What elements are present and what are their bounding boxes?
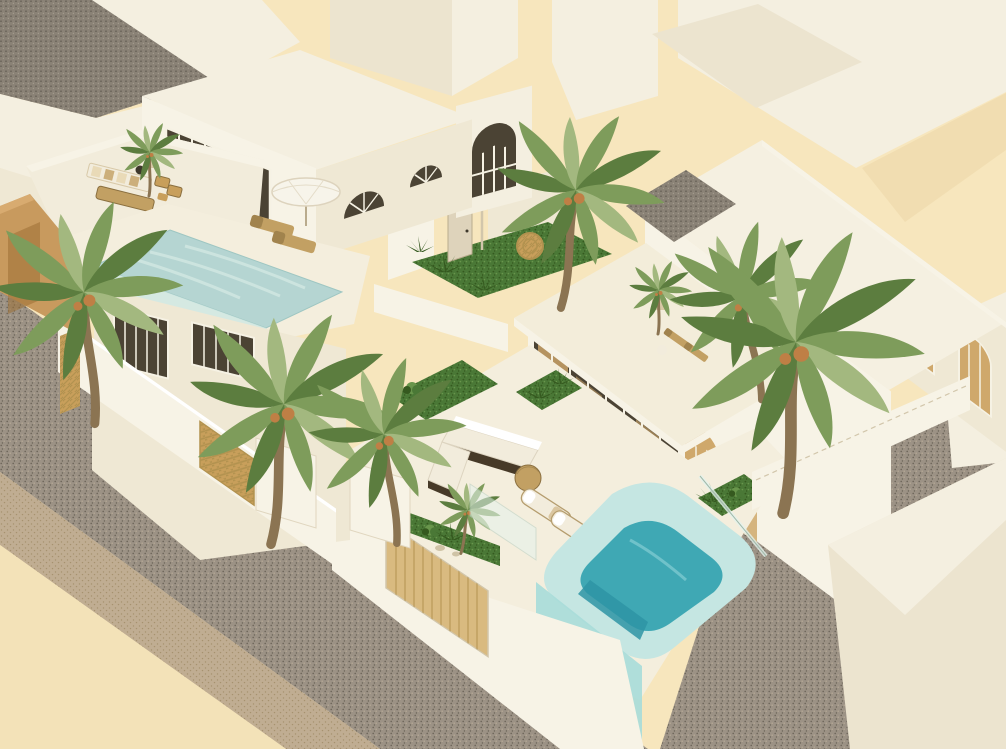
wicker-disc bbox=[517, 233, 543, 259]
render-canvas bbox=[0, 0, 1006, 749]
architectural-render bbox=[0, 0, 1006, 749]
pebble bbox=[452, 552, 460, 557]
round-pouf bbox=[515, 465, 541, 491]
pebble bbox=[435, 545, 445, 551]
terrace-side-table bbox=[657, 345, 667, 355]
